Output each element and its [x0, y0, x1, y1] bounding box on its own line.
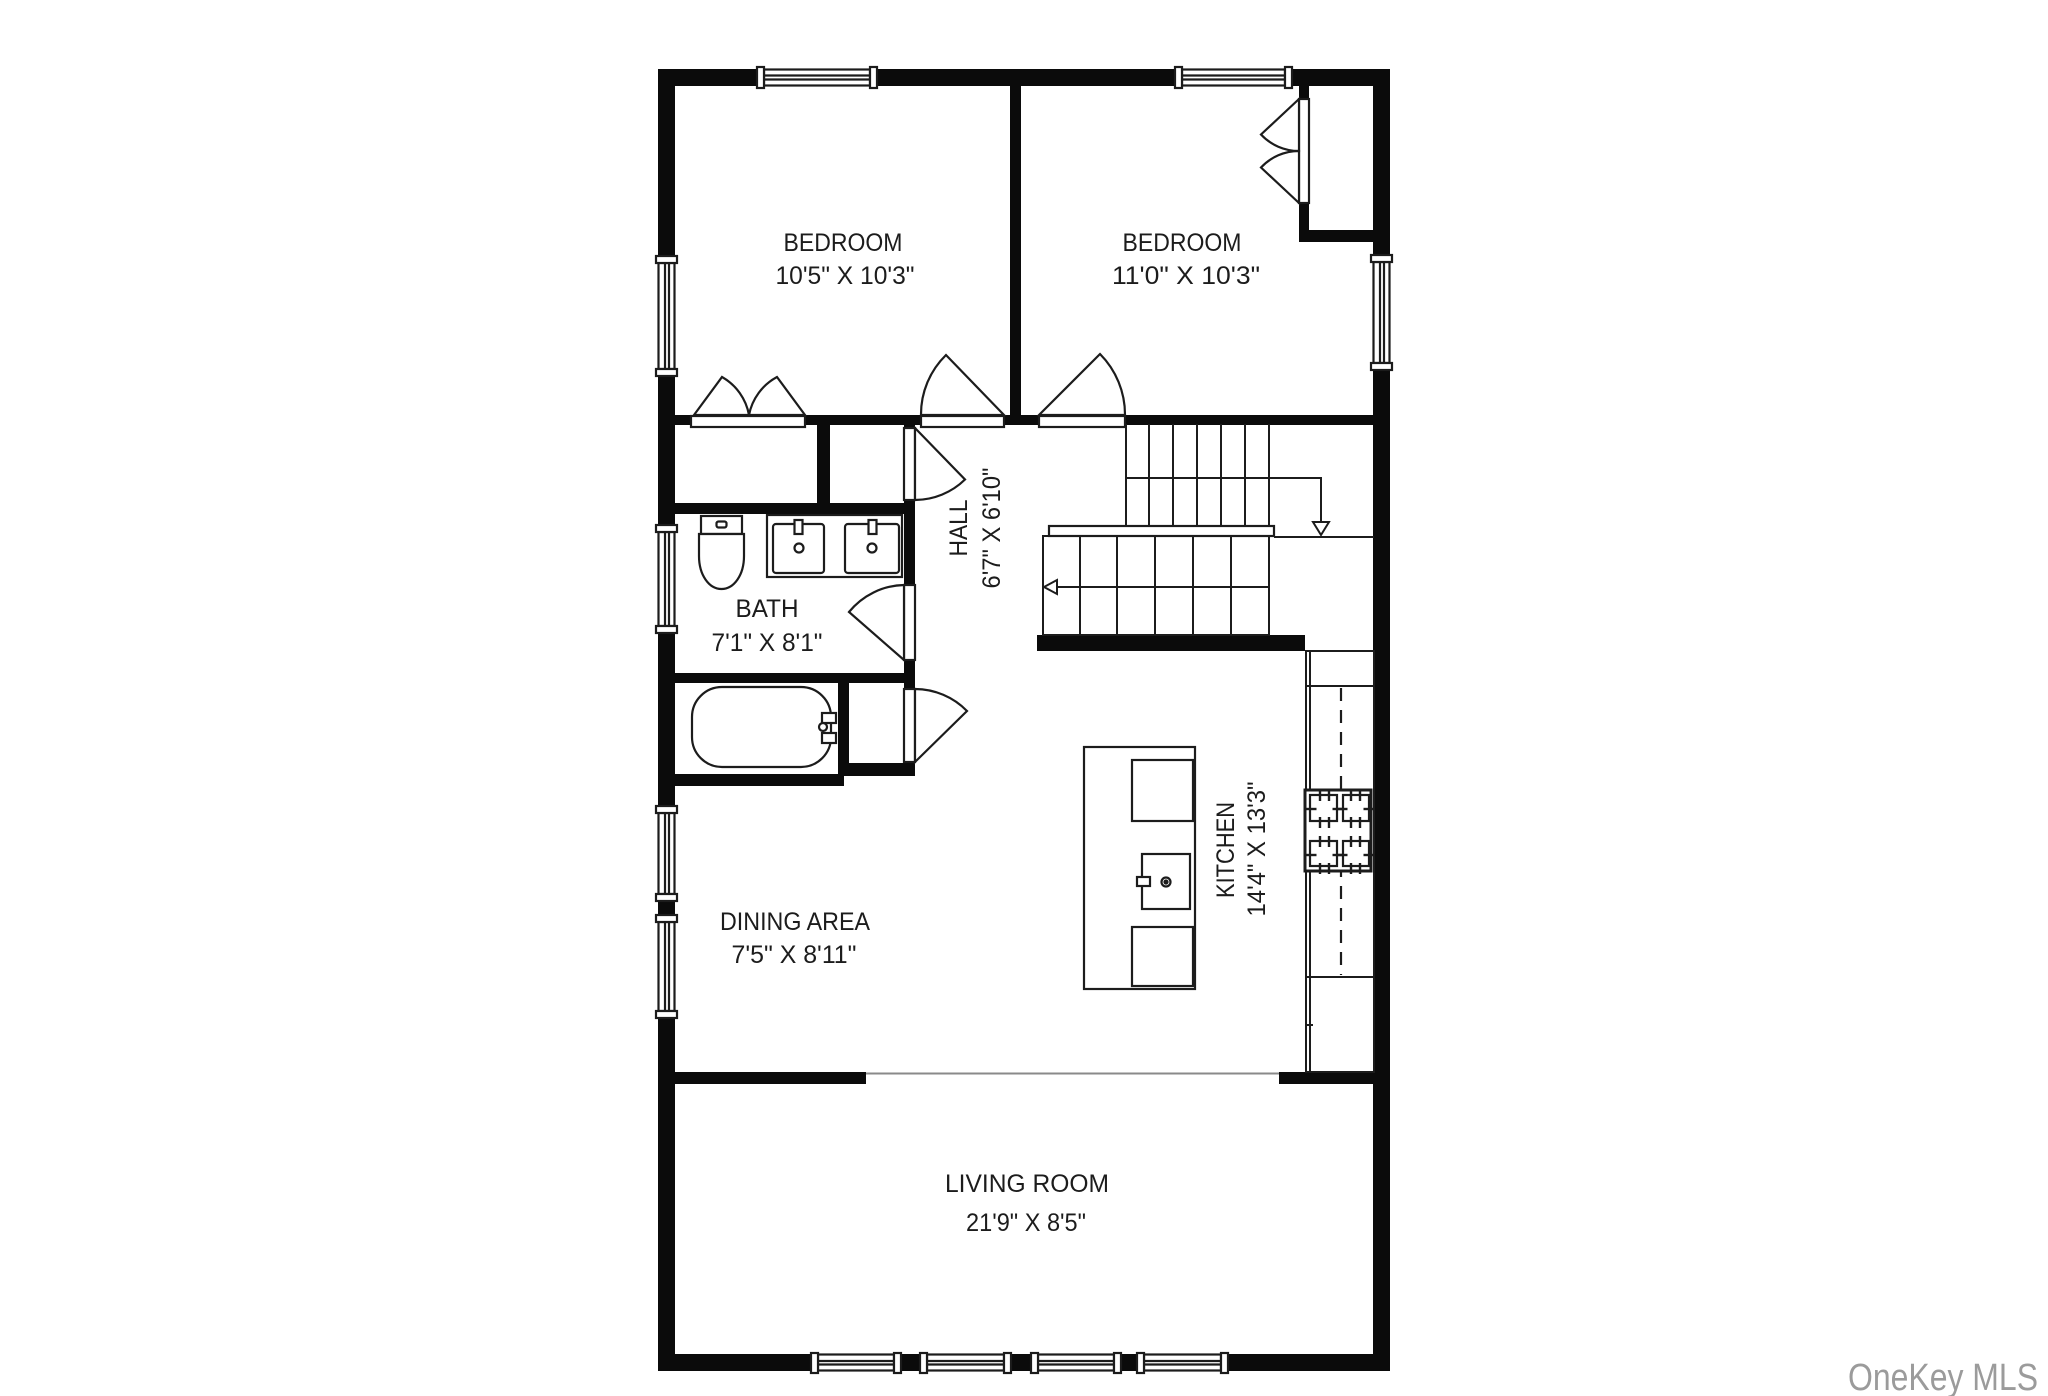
svg-text:21'9" X 8'5": 21'9" X 8'5": [966, 1209, 1086, 1237]
svg-text:14'4" X 13'3": 14'4" X 13'3": [1243, 782, 1271, 917]
svg-text:BEDROOM: BEDROOM: [1123, 229, 1242, 257]
svg-text:KITCHEN: KITCHEN: [1212, 802, 1240, 898]
svg-text:DINING AREA: DINING AREA: [720, 908, 870, 936]
svg-text:OneKey MLS: OneKey MLS: [1848, 1357, 2038, 1396]
svg-text:7'5" X 8'11": 7'5" X 8'11": [732, 941, 857, 969]
svg-text:7'1" X 8'1": 7'1" X 8'1": [712, 629, 823, 657]
svg-text:11'0" X 10'3": 11'0" X 10'3": [1112, 262, 1260, 290]
svg-text:BEDROOM: BEDROOM: [784, 229, 903, 257]
svg-text:BATH: BATH: [736, 595, 799, 623]
svg-text:6'7" X 6'10": 6'7" X 6'10": [978, 468, 1006, 589]
svg-text:10'5" X 10'3": 10'5" X 10'3": [776, 262, 915, 290]
svg-text:LIVING ROOM: LIVING ROOM: [945, 1170, 1109, 1198]
svg-text:HALL: HALL: [945, 499, 973, 556]
